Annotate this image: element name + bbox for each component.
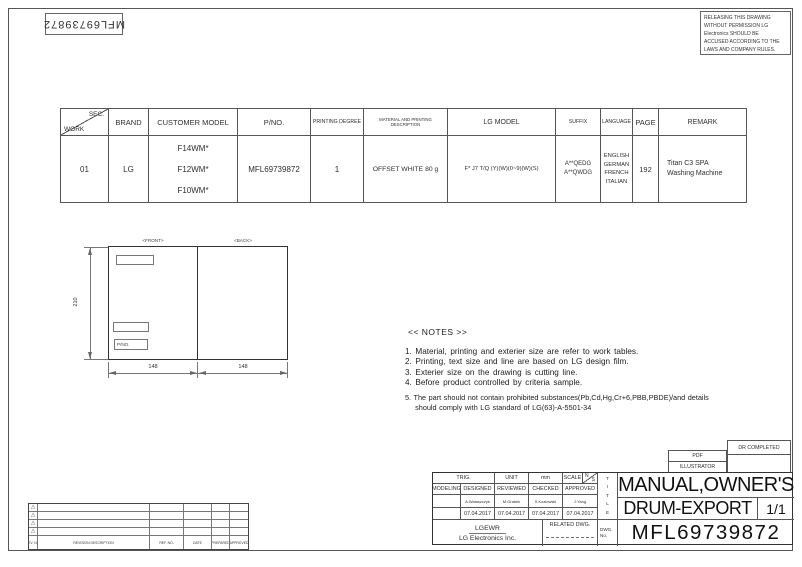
title-line2: DRUM-EXPORT: [618, 498, 758, 520]
approved-label: APPROVED: [563, 484, 598, 495]
dim-arrow-left2-icon: [199, 371, 206, 375]
dim-height-label: 210: [73, 292, 79, 312]
front-label: <FRONT>: [108, 238, 198, 243]
scale-n: N: [585, 473, 589, 479]
note-2: 2. Printing, text size and line are base…: [405, 357, 709, 367]
revision-table: △ △ △ △ REV. NO. REVISION DESCRIPTION RE…: [28, 503, 249, 550]
trig-label: TRIG.: [433, 473, 495, 484]
modeling-name: [433, 495, 461, 508]
title-vertical-label: T I T L E: [598, 473, 618, 520]
modeling-date: [433, 508, 461, 520]
header-sec: SEC.: [89, 111, 104, 118]
related-dwg-cell: RELATED DWG.: [543, 520, 598, 546]
rev-row1-ref: [150, 504, 184, 512]
cell-lg-model: F* J7 T/Q (Y)(W)(0~9)(W)(S): [448, 136, 556, 202]
work-table: SEC. WORK BRAND CUSTOMER MODEL P/NO. PRI…: [60, 108, 747, 203]
drawing-sheet: MFL69739872 RELEASING THIS DRAWING WITHO…: [0, 0, 802, 567]
related-dwg-blank: [546, 537, 594, 538]
reviewed-name: M.Grabek: [495, 495, 529, 508]
drawing-number: MFL69739872: [618, 520, 794, 546]
rev-row1-prep: [212, 504, 230, 512]
revision-delta-icon: △: [31, 513, 35, 518]
dim-height-line: [90, 248, 91, 359]
cell-customer-model: F14WM* F12WM* F10WM*: [149, 136, 238, 202]
scale-value-cell: N S: [583, 473, 598, 484]
title-line1: MANUAL,OWNER'S: [618, 473, 794, 498]
note-1: 1. Material, printing and exterier size …: [405, 347, 709, 357]
company-short: LGEWR: [469, 524, 506, 534]
header-work: WORK: [64, 126, 84, 133]
designed-name: A.Walaszczyk: [461, 495, 495, 508]
rev-header-prepared: PREPARED: [212, 536, 230, 549]
release-warning-box: RELEASING THIS DRAWING WITHOUT PERMISSIO…: [700, 11, 791, 55]
front-pno-box: P/NO.: [114, 339, 148, 350]
cell-material: OFFSET WHITE 80 g: [364, 136, 448, 202]
rev-row2-date: [184, 512, 212, 520]
rev-row2-ref: [150, 512, 184, 520]
dr-completed-box: DR COMPLETED: [727, 440, 791, 455]
rev-row3-appr: [230, 520, 248, 528]
rev-row4-mark: △: [29, 528, 38, 536]
header-language: LANGUAGE: [601, 109, 633, 136]
dim-arrow-left-icon: [109, 371, 116, 375]
header-brand: BRAND: [109, 109, 149, 136]
unit-value: mm: [529, 473, 563, 484]
front-text-placeholder: [113, 322, 149, 332]
dim-arrow-right2-icon: [280, 371, 287, 375]
rev-row3-mark: △: [29, 520, 38, 528]
rev-header-date: DATE: [184, 536, 212, 549]
revision-delta-icon: △: [31, 505, 35, 510]
scale-s: S: [592, 477, 595, 483]
rev-header-no: REV. NO.: [29, 536, 38, 549]
cell-pno: MFL69739872: [238, 136, 311, 202]
dwg-no-label: DWG. No.: [598, 520, 618, 546]
note-5-continued: should comply with LG standard of LG(63)…: [405, 403, 709, 413]
unit-label: UNIT: [495, 473, 529, 484]
header-page: PAGE: [633, 109, 659, 136]
dim-width-back-line: [198, 373, 288, 374]
front-logo-placeholder: [116, 255, 154, 265]
header-pno: P/NO.: [238, 109, 311, 136]
rev-row3-date: [184, 520, 212, 528]
checked-name: S.Kozlowski: [529, 495, 563, 508]
company-full: LG Electronics Inc.: [459, 534, 516, 543]
rev-row4-ref: [150, 528, 184, 536]
dr-completed-empty-cell: [727, 454, 791, 473]
checked-label: CHECKED: [529, 484, 563, 495]
rev-row4-prep: [212, 528, 230, 536]
dim-width-back-label: 148: [198, 364, 288, 370]
rev-row1-date: [184, 504, 212, 512]
front-pno-label: P/NO.: [117, 342, 130, 347]
reviewed-label: REVIEWED: [495, 484, 529, 495]
dim-arrow-up-icon: [88, 248, 92, 255]
back-label: <BACK>: [198, 238, 288, 243]
cell-page: 192: [633, 136, 659, 202]
output-illustrator-label: ILLUSTRATOR: [669, 462, 726, 472]
revision-delta-icon: △: [31, 521, 35, 526]
checked-date: 07.04.2017: [529, 508, 563, 520]
rev-row1-desc: [38, 504, 150, 512]
cell-language: ENGLISH GERMAN FRENCH ITALIAN: [601, 136, 633, 202]
rev-row4-appr: [230, 528, 248, 536]
rev-row4-date: [184, 528, 212, 536]
rev-row3-prep: [212, 520, 230, 528]
note-4: 4. Before product controlled by criteria…: [405, 378, 709, 388]
dim-arrow-right-icon: [190, 371, 197, 375]
dim-width-front-label: 148: [108, 364, 198, 370]
cell-brand: LG: [109, 136, 149, 202]
header-material: MATERIAL AND PRINTING DESCRIPTION: [364, 109, 448, 136]
note-3: 3. Exterier size on the drawing is cutti…: [405, 368, 709, 378]
output-pdf-label: PDF: [669, 451, 726, 462]
dim-width-front-line: [108, 373, 198, 374]
rev-row3-ref: [150, 520, 184, 528]
rev-row2-appr: [230, 512, 248, 520]
header-lg-model: LG MODEL: [448, 109, 556, 136]
designed-label: DESIGNED: [461, 484, 495, 495]
related-dwg-label: RELATED DWG.: [550, 522, 591, 528]
notes-title: << NOTES >>: [408, 327, 467, 337]
title-block: TRIG. UNIT mm SCALE N S MODELING DESIGNE…: [432, 472, 793, 545]
notes-list: 1. Material, printing and exterier size …: [405, 347, 709, 413]
approved-name: J.Yang: [563, 495, 598, 508]
rev-header-approved: APPROVED: [230, 536, 248, 549]
rotated-doc-number-box: MFL69739872: [45, 13, 123, 35]
scale-label: SCALE: [563, 473, 583, 484]
header-printing-degree: PRINTING DEGREE: [311, 109, 364, 136]
cell-work: 01: [61, 136, 109, 202]
cell-remark: Titan C3 SPA Washing Machine: [659, 136, 746, 202]
rev-row4-desc: [38, 528, 150, 536]
part-fold-line: [197, 246, 198, 360]
rev-row2-desc: [38, 512, 150, 520]
company-cell: LGEWR LG Electronics Inc.: [433, 520, 543, 546]
rev-row2-mark: △: [29, 512, 38, 520]
sheet-count: 1/1: [758, 498, 794, 520]
header-remark: REMARK: [659, 109, 746, 136]
designed-date: 07.04.2017: [461, 508, 495, 520]
revision-delta-icon: △: [31, 529, 35, 534]
work-table-corner-cell: SEC. WORK: [61, 109, 109, 136]
rev-header-description: REVISION DESCRIPTION: [38, 536, 150, 549]
rev-header-ref: REF. NO.: [150, 536, 184, 549]
reviewed-date: 07.04.2017: [495, 508, 529, 520]
rev-row2-prep: [212, 512, 230, 520]
cell-printing-degree: 1: [311, 136, 364, 202]
modeling-label: MODELING: [433, 484, 461, 495]
rev-row1-mark: △: [29, 504, 38, 512]
header-customer-model: CUSTOMER MODEL: [149, 109, 238, 136]
note-5: 5. The part should not contain prohibite…: [405, 393, 709, 403]
output-format-box: PDF ILLUSTRATOR: [668, 450, 727, 473]
dim-ext-bottom: [84, 359, 108, 360]
rotated-doc-number: MFL69739872: [43, 18, 125, 30]
header-suffix: SUFFIX: [556, 109, 601, 136]
dim-arrow-down-icon: [88, 352, 92, 359]
rev-row1-appr: [230, 504, 248, 512]
approved-date: 07.04.2017: [563, 508, 598, 520]
cell-suffix: A**QEDG A**QWDG: [556, 136, 601, 202]
rev-row3-desc: [38, 520, 150, 528]
